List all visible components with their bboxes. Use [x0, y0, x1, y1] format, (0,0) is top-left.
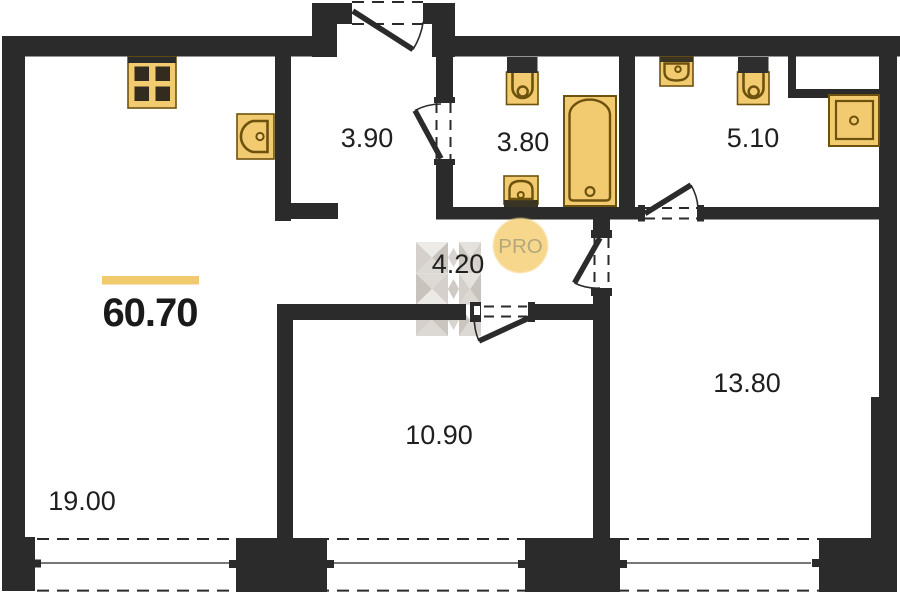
svg-text:60.70: 60.70 [102, 291, 197, 335]
svg-text:3.90: 3.90 [341, 123, 394, 153]
svg-text:PRO: PRO [498, 235, 542, 258]
svg-text:5.10: 5.10 [727, 123, 780, 153]
svg-text:19.00: 19.00 [48, 486, 116, 516]
svg-text:10.90: 10.90 [405, 420, 473, 450]
svg-text:3.80: 3.80 [497, 127, 550, 157]
svg-text:13.80: 13.80 [713, 368, 781, 398]
svg-text:4.20: 4.20 [432, 249, 485, 279]
